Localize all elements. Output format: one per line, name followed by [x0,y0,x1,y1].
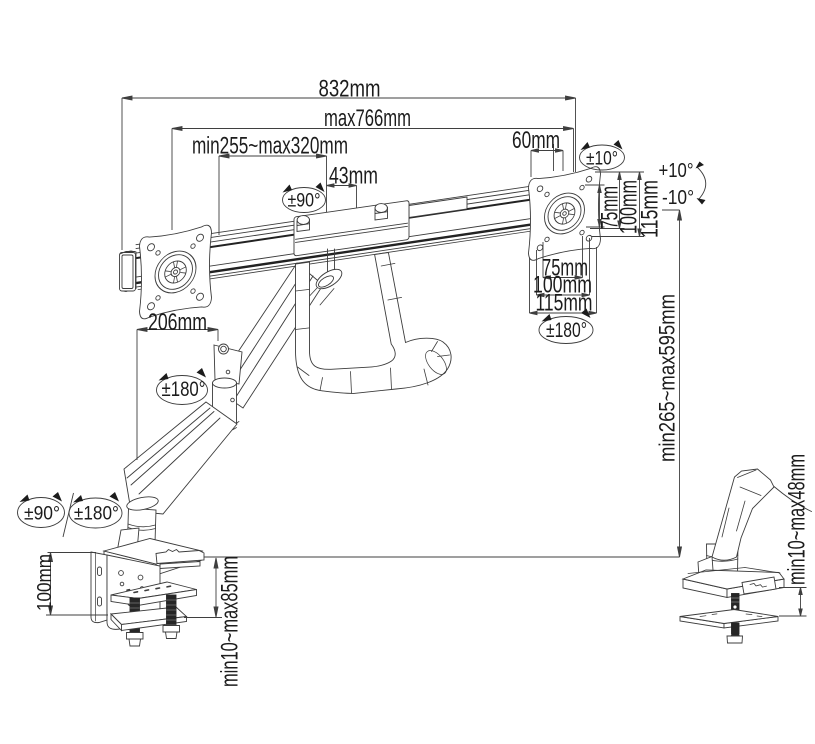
svg-text:115mm: 115mm [536,290,593,317]
svg-text:115mm: 115mm [637,180,664,238]
svg-text:min255~max320mm: min255~max320mm [192,133,348,160]
svg-text:±90°: ±90° [24,503,60,525]
svg-text:±10°: ±10° [586,148,618,170]
svg-text:max766mm: max766mm [324,105,411,132]
svg-text:100mm: 100mm [34,554,56,611]
svg-text:min265~max595mm: min265~max595mm [655,294,680,462]
svg-text:60mm: 60mm [512,127,560,154]
svg-text:43mm: 43mm [329,163,378,190]
svg-text:±180°: ±180° [162,378,206,401]
svg-text:206mm: 206mm [148,309,207,336]
svg-text:-10°: -10° [662,187,694,209]
svg-text:±180°: ±180° [546,319,587,342]
svg-text:min10~max85mm: min10~max85mm [217,556,244,687]
svg-text:min10~max48mm: min10~max48mm [784,454,811,585]
svg-text:±90°: ±90° [288,191,321,212]
svg-text:832mm: 832mm [319,76,381,103]
svg-text:+10°: +10° [659,160,694,182]
svg-text:±180°: ±180° [74,503,119,525]
